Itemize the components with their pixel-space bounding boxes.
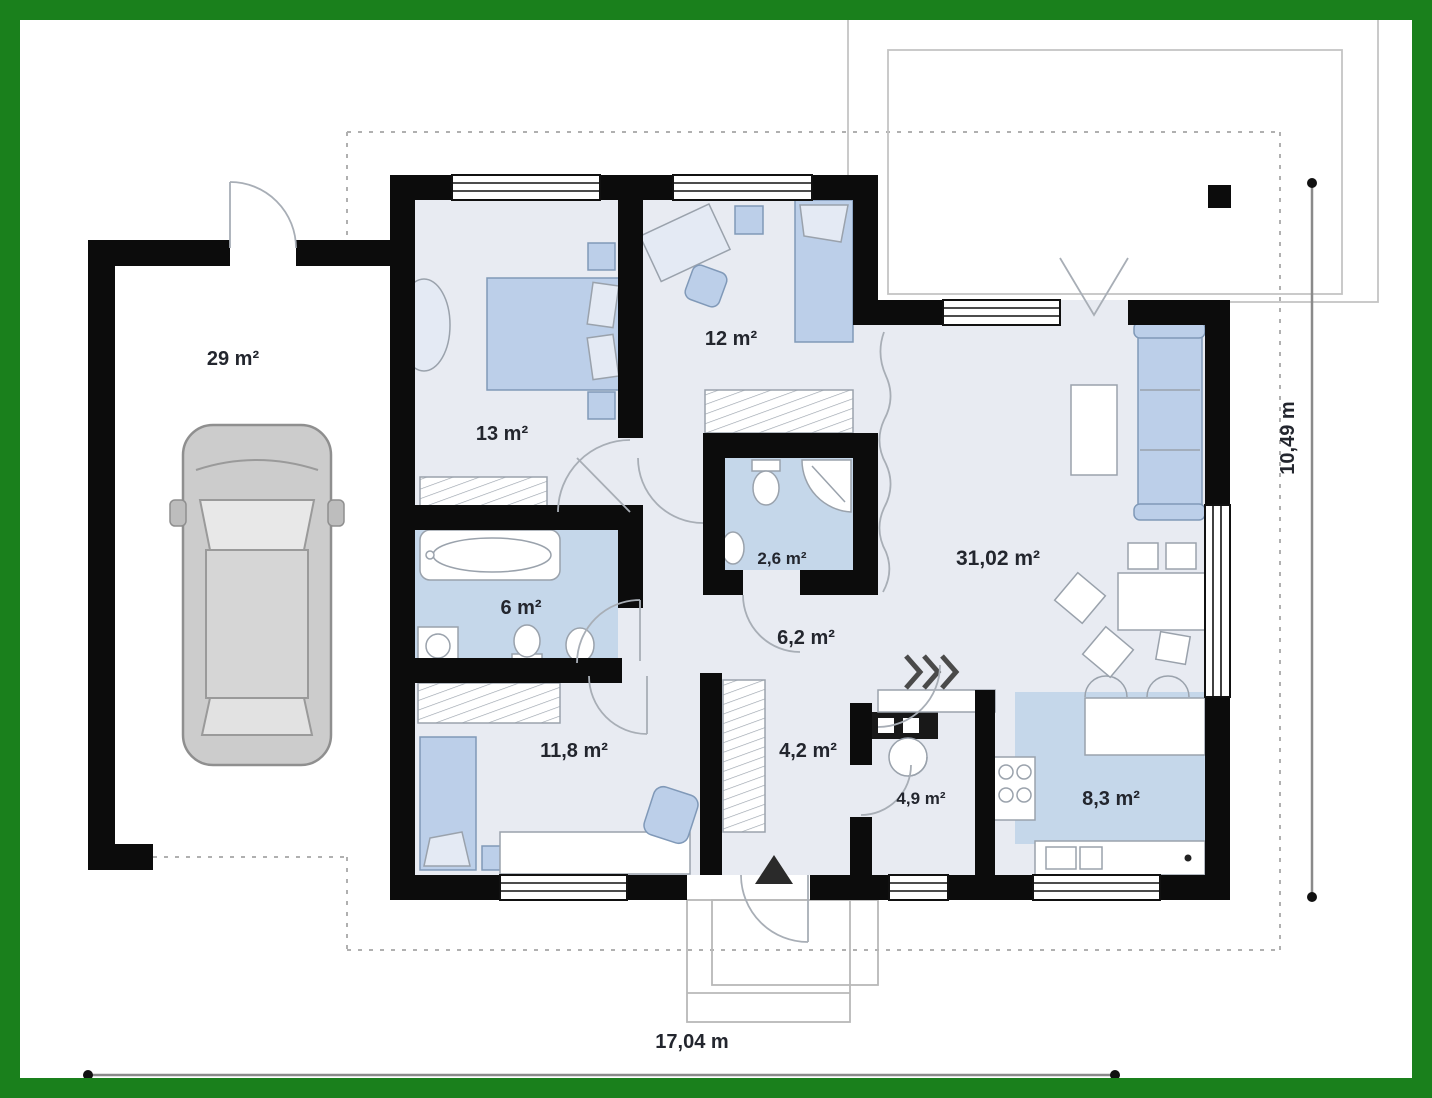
floor-plan-page: 29 m² 13 m² 12 m² 2,6 m² 6 m² 6,2 m² 31,… [0, 0, 1432, 1098]
sink-counter [1035, 841, 1205, 875]
nightstand [588, 392, 615, 419]
pillow [800, 205, 848, 242]
dining-chair [1156, 632, 1190, 665]
sofa [1138, 330, 1202, 512]
dimension-height: 10,49 m [1277, 178, 1317, 902]
window [1033, 875, 1160, 900]
height-dimension-label: 10,49 m [1277, 401, 1299, 474]
window [500, 875, 627, 900]
bedroom2-area-label: 12 m² [705, 328, 758, 350]
pillow [587, 334, 619, 379]
window [943, 300, 1060, 325]
floor-plan-drawing: 29 m² 13 m² 12 m² 2,6 m² 6 m² 6,2 m² 31,… [0, 0, 1432, 1098]
toilet [514, 625, 540, 657]
garage-area-label: 29 m² [207, 348, 260, 370]
window [673, 175, 812, 200]
pillow [424, 832, 470, 866]
entry-area-label: 4,9 m² [896, 789, 945, 808]
dot-marker [1185, 855, 1192, 862]
shelf [735, 206, 763, 234]
side-mirror [170, 500, 186, 526]
terrace-outline [848, 18, 1378, 302]
entrance-porch-outline [687, 900, 878, 1022]
window [452, 175, 600, 200]
bathroom-area-label: 6 m² [500, 597, 541, 619]
width-dimension-label: 17,04 m [655, 1031, 728, 1053]
nightstand [588, 243, 615, 270]
dining-table [1118, 573, 1210, 630]
coffee-table [1071, 385, 1117, 475]
pillow [587, 282, 619, 327]
dining-chair [1128, 543, 1158, 569]
chimney [1208, 185, 1231, 208]
toilet-tank [752, 460, 780, 471]
side-mirror [328, 500, 344, 526]
wash-basin [722, 532, 744, 564]
dining-chair [1166, 543, 1196, 569]
front-door [741, 875, 808, 942]
bar-counter [1085, 698, 1205, 755]
sofa-armrest [1134, 504, 1205, 520]
toilet [753, 471, 779, 505]
car-roof [206, 550, 308, 698]
window [1205, 505, 1230, 697]
windshield [200, 500, 314, 550]
hall2-area-label: 4,2 m² [779, 740, 837, 762]
bedroom1-area-label: 13 m² [476, 423, 529, 445]
kitchen-area-label: 8,3 m² [1082, 788, 1140, 810]
hall2-furniture [723, 680, 765, 832]
faucet [426, 551, 434, 559]
car [170, 425, 344, 765]
living-room-area-label: 31,02 m² [956, 547, 1040, 570]
wc-area-label: 2,6 m² [757, 549, 806, 568]
dimension-width: 17,04 m [83, 1031, 1120, 1080]
rear-window [202, 698, 312, 735]
hall-area-label: 6,2 m² [777, 627, 835, 649]
window [889, 875, 948, 900]
garage-side-door [230, 182, 296, 248]
bedroom3-area-label: 11,8 m² [540, 740, 608, 762]
